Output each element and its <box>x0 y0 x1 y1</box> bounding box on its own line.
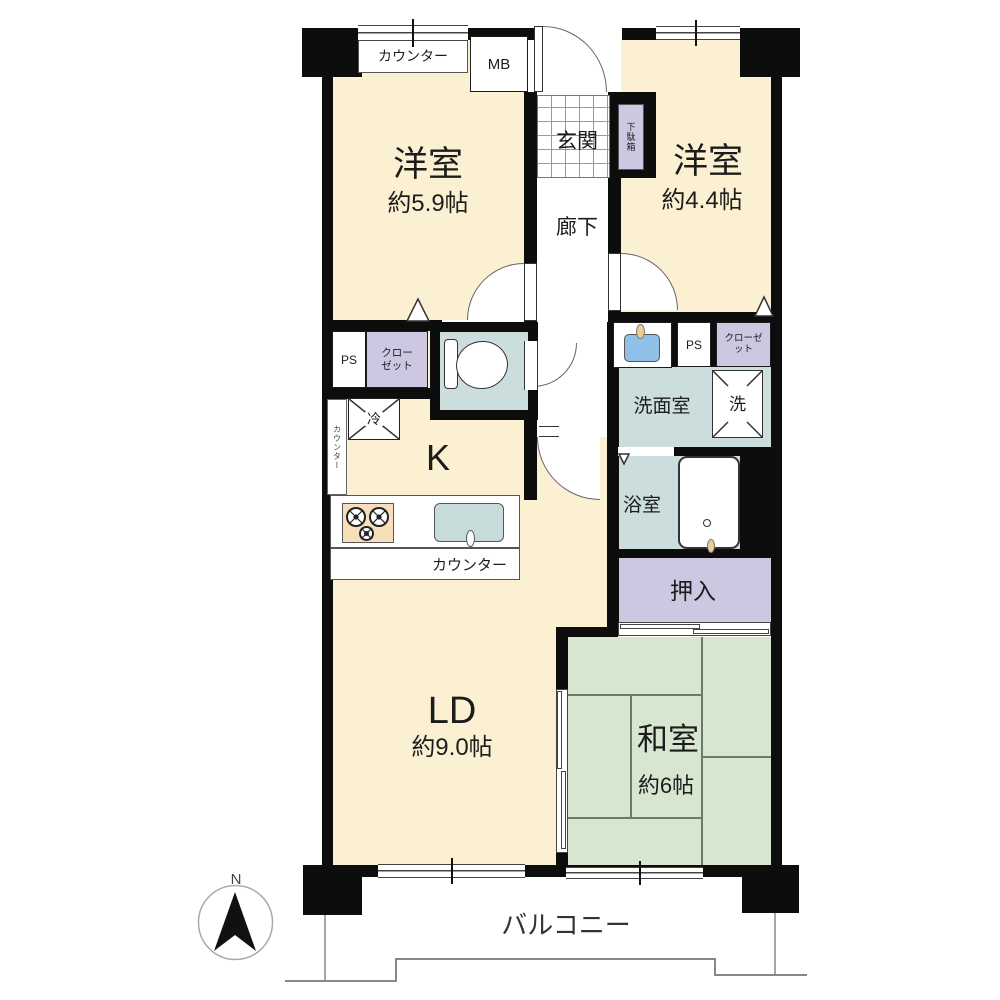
balcony-outline <box>285 959 807 981</box>
compass-north-label: N <box>226 870 246 888</box>
room-western2-size: 約4.4帖 <box>622 187 782 215</box>
ld-name: LD <box>372 689 532 733</box>
room-western2-name: 洋室 <box>628 141 788 181</box>
washroom-label: 洗面室 <box>602 394 722 418</box>
japanese-room-size: 約6帖 <box>596 772 736 800</box>
closet-door-marker-right <box>755 297 773 316</box>
refrigerator-label: 冷 <box>348 398 400 440</box>
hallway-label: 廊下 <box>537 214 617 240</box>
floor-plan: MB カウンター PS クローゼット 下駄箱 カウンター カウンター PS <box>0 0 1000 1000</box>
north-arrow <box>214 892 256 951</box>
bathroom-label: 浴室 <box>602 493 682 517</box>
entrance-label: 玄関 <box>537 128 617 154</box>
room-western1-name: 洋室 <box>348 144 508 184</box>
closet-door-marker-left <box>407 299 429 321</box>
japanese-room-name: 和室 <box>598 720 738 758</box>
balcony-label: バルコニー <box>460 908 672 942</box>
bathroom-door-marker <box>619 454 629 464</box>
kitchen-label: K <box>398 436 478 480</box>
ld-size: 約9.0帖 <box>372 734 532 762</box>
burner-cross <box>349 510 386 539</box>
room-western1-size: 約5.9帖 <box>348 190 508 218</box>
futon-closet-label: 押入 <box>623 577 763 605</box>
washer-label: 洗 <box>712 370 763 438</box>
